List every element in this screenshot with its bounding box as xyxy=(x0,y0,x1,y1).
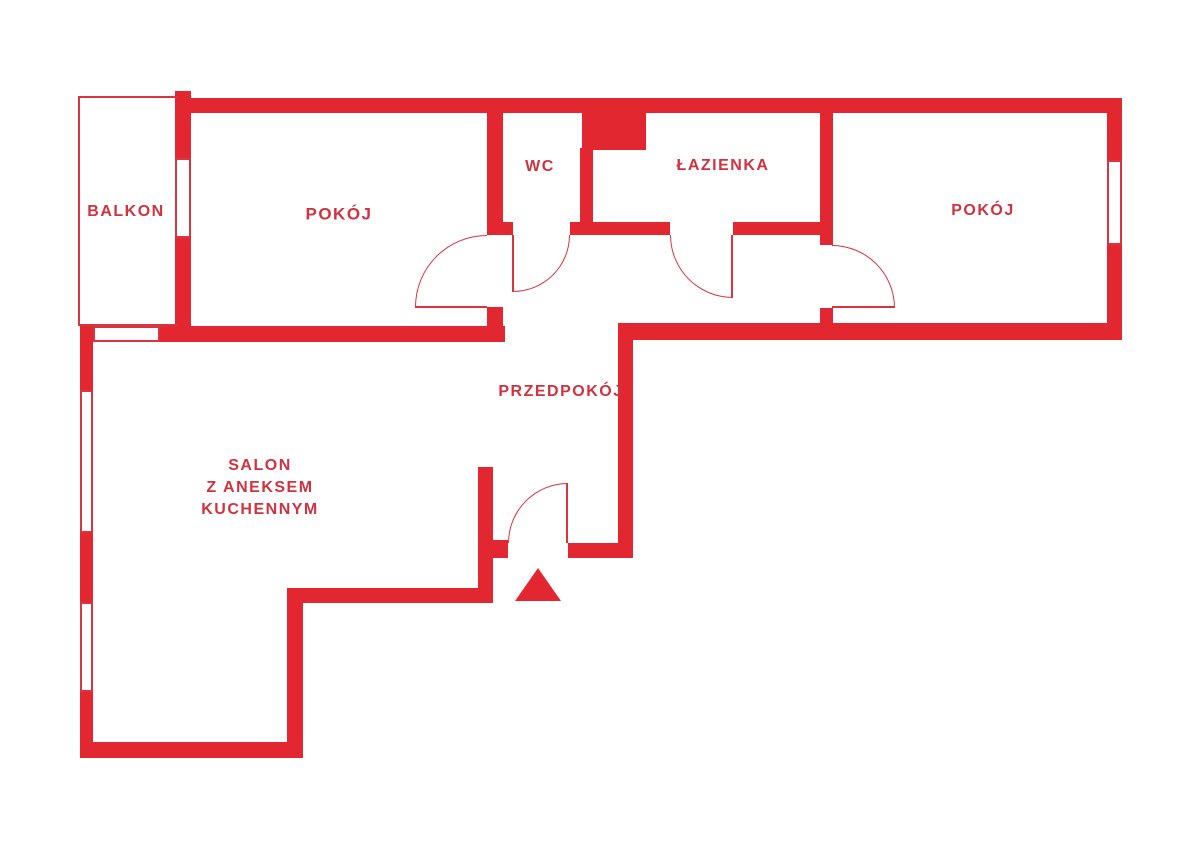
door-pokoj-left-leaf xyxy=(415,306,487,308)
wall-segment xyxy=(287,588,303,758)
wall-segment xyxy=(160,326,505,342)
door-lazienka-leaf xyxy=(731,235,733,298)
wall-segment xyxy=(493,540,508,558)
window xyxy=(93,326,160,342)
door-pokoj-right-leaf xyxy=(832,306,895,308)
window xyxy=(1107,160,1122,245)
wall-segment xyxy=(733,222,820,235)
wall-segment xyxy=(618,323,1122,340)
wall-segment xyxy=(1107,98,1122,160)
wall-segment xyxy=(820,98,833,245)
wall-segment xyxy=(618,340,633,558)
door-lazienka-arc xyxy=(670,235,733,298)
door-entrance-arc xyxy=(508,483,568,543)
wall-segment xyxy=(582,105,646,150)
wall-segment xyxy=(80,326,93,390)
floor-plan: BALKONPOKÓJWCŁAZIENKAPOKÓJPRZEDPOKÓJSALO… xyxy=(0,0,1200,850)
wall-segment xyxy=(80,742,303,758)
window xyxy=(80,602,93,692)
room-label-salon: SALON Z ANEKSEM KUCHENNYM xyxy=(201,455,319,521)
wall-segment xyxy=(175,98,1122,113)
room-label-wc: WC xyxy=(525,156,555,178)
wall-segment xyxy=(820,308,833,328)
wall-segment xyxy=(80,533,93,602)
door-entrance-leaf xyxy=(566,483,568,543)
entrance-arrow-icon xyxy=(515,568,561,601)
window xyxy=(80,390,93,533)
wall-segment xyxy=(303,588,493,603)
room-label-pokoj-right: POKÓJ xyxy=(951,200,1015,222)
door-pokoj-right-arc xyxy=(832,245,895,308)
door-wc-arc xyxy=(513,235,570,292)
wall-segment xyxy=(487,222,513,235)
room-label-przedpokoj: PRZEDPOKÓJ xyxy=(498,381,623,403)
wall-segment xyxy=(487,307,503,342)
door-pokoj-left-arc xyxy=(415,235,487,307)
room-label-pokoj-left: POKÓJ xyxy=(305,202,372,225)
wall-segment xyxy=(478,467,493,603)
door-wc-leaf xyxy=(512,235,514,292)
wall-segment xyxy=(487,98,503,235)
wall-segment xyxy=(570,222,670,235)
room-label-balkon: BALKON xyxy=(87,201,164,223)
window xyxy=(175,158,191,238)
room-label-lazienka: ŁAZIENKA xyxy=(677,155,770,177)
